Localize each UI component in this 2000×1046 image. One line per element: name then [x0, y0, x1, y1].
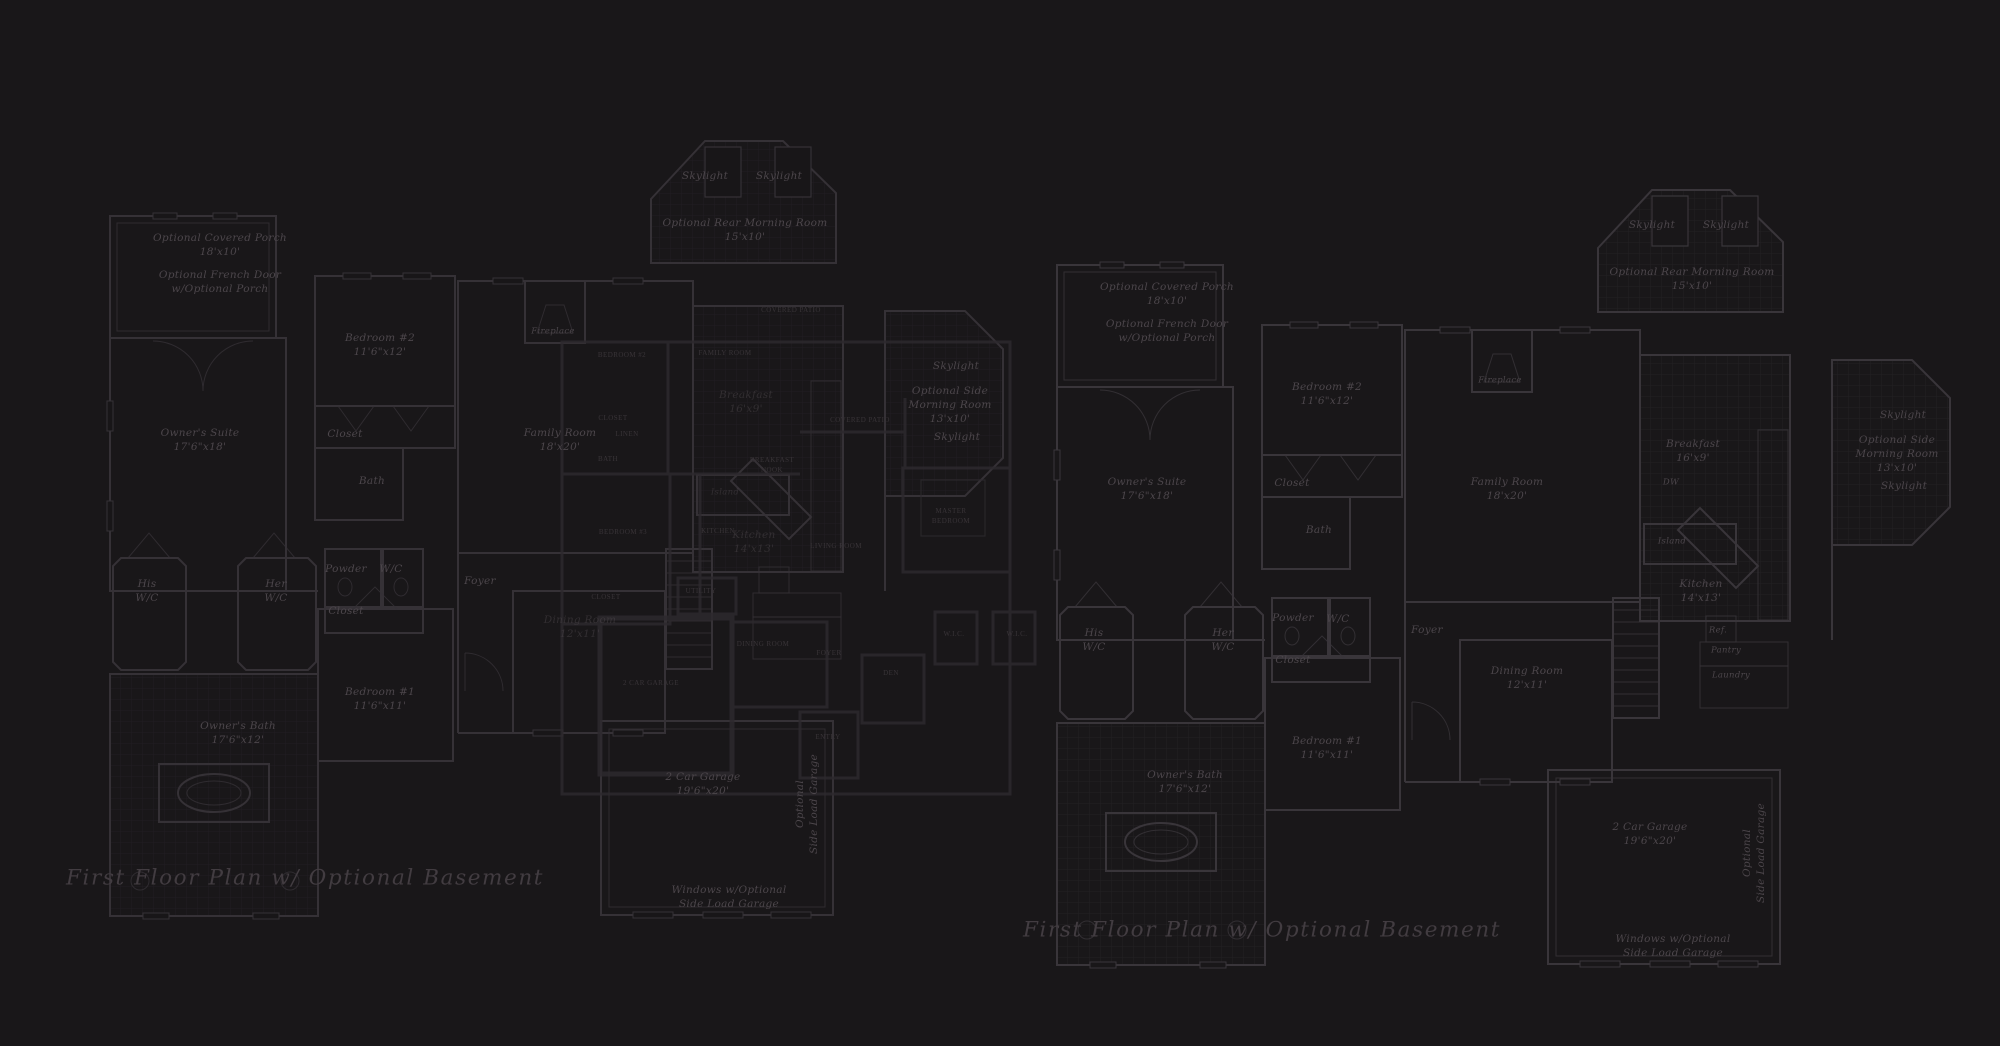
living-room-label: LIVING ROOM: [810, 542, 862, 552]
breakfast-label: Breakfast 16'x9': [1666, 438, 1720, 466]
owners-suite-label: Owner's Suite 17'6"x18': [161, 427, 240, 455]
ref-label: Ref.: [1709, 625, 1727, 636]
floor-plan-collage: First Floor Plan w/ Optional Basement Fi…: [0, 0, 2000, 1046]
master-bedroom-label: MASTER BEDROOM: [932, 507, 970, 527]
closet-2-label: Closet: [1275, 654, 1310, 668]
left-plan-title: First Floor Plan w/ Optional Basement: [66, 866, 544, 891]
garage-label: 2 Car Garage 19'6"x20': [1612, 821, 1687, 849]
powder-label: Powder: [1272, 612, 1314, 626]
fireplace-label: Fireplace: [1478, 375, 1521, 386]
wc-label: W/C: [379, 563, 402, 577]
labels-layer: First Floor Plan w/ Optional Basement Fi…: [0, 0, 2000, 1046]
kitchen-label: Kitchen 14'x13': [1679, 578, 1722, 606]
family-room-label: Family Room 18'x20': [1471, 476, 1544, 504]
dining-room-label: DINING ROOM: [737, 640, 790, 650]
linen-label: LINEN: [615, 430, 638, 440]
skylight-label: Skylight: [682, 170, 728, 184]
windows-note: Windows w/Optional Side Load Garage: [1615, 933, 1730, 961]
his-wc-label: His W/C: [1082, 627, 1105, 655]
owners-bath-label: Owner's Bath 17'6"x12': [1147, 769, 1223, 797]
owners-suite-label: Owner's Suite 17'6"x18': [1108, 476, 1187, 504]
her-wc-label: Her W/C: [1211, 627, 1234, 655]
dining-room-label: Dining Room 12'x11': [544, 614, 617, 642]
dw-label: DW: [1663, 477, 1679, 488]
covered-patio-label: COVERED PATIO: [830, 416, 890, 426]
family-room-label: FAMILY ROOM: [698, 349, 751, 359]
his-wc-label: His W/C: [135, 578, 158, 606]
wic-label: W.I.C.: [1007, 630, 1028, 640]
skylight-label: Skylight: [933, 360, 979, 374]
bath-label: Bath: [359, 475, 385, 489]
kitchen-label: KITCHEN: [701, 527, 735, 537]
side-morning-room-label: Optional Side Morning Room 13'x10': [908, 385, 991, 427]
utility-label: UTILITY: [686, 587, 717, 597]
side-morning-room-label: Optional Side Morning Room 13'x10': [1855, 434, 1938, 476]
skylight-label: Skylight: [934, 431, 980, 445]
closet-label: Closet: [327, 428, 362, 442]
bath-label: BATH: [598, 455, 618, 465]
skylight-label: Skylight: [1703, 219, 1749, 233]
garage-label: 2 CAR GARAGE: [623, 679, 679, 689]
pantry-label: Pantry: [1711, 645, 1741, 656]
wic-label: W.I.C.: [944, 630, 965, 640]
bedroom-2-label: BEDROOM #2: [598, 351, 646, 361]
garage-label: 2 Car Garage 19'6"x20': [665, 771, 740, 799]
entry-label: ENTRY: [815, 733, 840, 743]
dining-room-label: Dining Room 12'x11': [1491, 665, 1564, 693]
island-label: Island: [711, 487, 739, 498]
foyer-label: Foyer: [1411, 624, 1443, 638]
optional-french-door-note: Optional French Door w/Optional Porch: [159, 269, 281, 297]
bedroom-2-label: Bedroom #2 11'6"x12': [345, 332, 415, 360]
bedroom-1-label: Bedroom #1 11'6"x11': [1292, 735, 1362, 763]
powder-label: Powder: [325, 563, 367, 577]
laundry-label: Laundry: [1712, 670, 1750, 681]
bedroom-3-label: BEDROOM #3: [599, 528, 647, 538]
closet-2-label: CLOSET: [591, 593, 620, 603]
covered-patio-label: COVERED PATIO: [761, 306, 821, 316]
kitchen-label: Kitchen 14'x13': [732, 529, 775, 557]
breakfast-label: Breakfast 16'x9': [719, 389, 773, 417]
windows-note: Windows w/Optional Side Load Garage: [671, 884, 786, 912]
optional-side-load-garage-label: Optional Side Load Garage: [794, 754, 822, 854]
her-wc-label: Her W/C: [264, 578, 287, 606]
foyer-label: FOYER: [816, 649, 841, 659]
wc-label: W/C: [1326, 613, 1349, 627]
optional-side-load-garage-label: Optional Side Load Garage: [1741, 803, 1769, 903]
family-room-label: Family Room 18'x20': [524, 427, 597, 455]
skylight-label: Skylight: [756, 170, 802, 184]
optional-french-door-note: Optional French Door w/Optional Porch: [1106, 318, 1228, 346]
rear-morning-room-label: Optional Rear Morning Room 15'x10': [662, 217, 827, 245]
foyer-label: Foyer: [464, 575, 496, 589]
closet-label: CLOSET: [598, 414, 627, 424]
island-label: Island: [1658, 536, 1686, 547]
breakfast-nook-label: BREAKFAST NOOK: [750, 456, 794, 476]
skylight-label: Skylight: [1881, 480, 1927, 494]
owners-bath-label: Owner's Bath 17'6"x12': [200, 720, 276, 748]
optional-covered-porch-label: Optional Covered Porch 18'x10': [153, 232, 287, 260]
rear-morning-room-label: Optional Rear Morning Room 15'x10': [1609, 266, 1774, 294]
fireplace-label: Fireplace: [531, 326, 574, 337]
closet-2-label: Closet: [328, 605, 363, 619]
optional-covered-porch-label: Optional Covered Porch 18'x10': [1100, 281, 1234, 309]
right-plan-title: First Floor Plan w/ Optional Basement: [1023, 918, 1501, 943]
bedroom-1-label: Bedroom #1 11'6"x11': [345, 686, 415, 714]
bath-label: Bath: [1306, 524, 1332, 538]
closet-label: Closet: [1274, 477, 1309, 491]
skylight-label: Skylight: [1880, 409, 1926, 423]
bedroom-2-label: Bedroom #2 11'6"x12': [1292, 381, 1362, 409]
skylight-label: Skylight: [1629, 219, 1675, 233]
den-label: DEN: [883, 669, 899, 679]
